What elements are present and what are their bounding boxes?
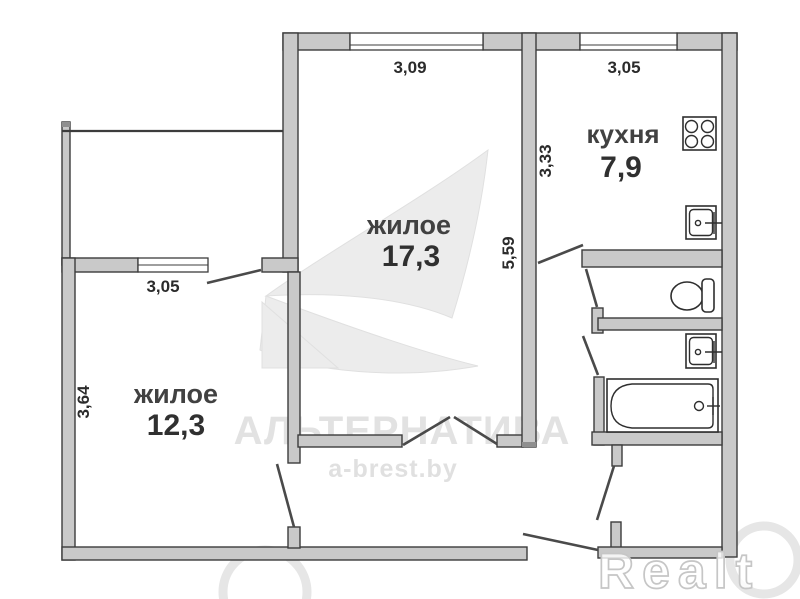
kitchen-door xyxy=(538,245,583,263)
realt-logo-watermark: Realt xyxy=(598,543,760,599)
living-large-right-wall xyxy=(522,33,536,447)
bottom-wall-left xyxy=(62,547,527,560)
wc-door xyxy=(586,269,597,307)
hall-inner-door xyxy=(597,466,614,520)
living-large-name: жилое xyxy=(366,210,451,240)
kitchen-name: кухня xyxy=(586,119,659,149)
floor-plan: АЛЬТЕРНАТИВА a-brest.by xyxy=(0,0,800,599)
wc-bath-divider-wall xyxy=(598,318,722,330)
living-small-door-stub xyxy=(288,527,300,548)
agency-site-watermark: a-brest.by xyxy=(328,455,457,483)
living-large-door-stub xyxy=(497,435,523,447)
right-outer-wall xyxy=(722,33,737,557)
kitchen-area: 7,9 xyxy=(600,151,642,184)
living-small-top-wall-b xyxy=(262,258,298,272)
bathroom-door xyxy=(583,336,598,375)
dim-living-large-width: 3,09 xyxy=(393,58,426,77)
kitchen-bottom-wall xyxy=(582,250,722,267)
kitchen-window xyxy=(580,33,677,50)
floor-plan-page: АЛЬТЕРНАТИВА a-brest.by xyxy=(0,0,800,599)
wall-end-cap xyxy=(522,442,536,447)
living-large-window xyxy=(350,33,483,50)
bathroom-bottom-wall xyxy=(592,432,722,445)
living-large-area: 17,3 xyxy=(382,240,440,273)
living-small-name: жилое xyxy=(133,379,218,409)
dim-balcony-window: 3,05 xyxy=(146,277,179,296)
living-large-bottom-wall xyxy=(298,435,402,447)
bathtub-icon xyxy=(607,379,720,432)
dim-kitchen-width: 3,05 xyxy=(607,58,640,77)
balcony-wall-cap xyxy=(62,122,70,127)
living-small-area: 12,3 xyxy=(147,409,205,442)
dim-living-small-depth: 3,64 xyxy=(74,385,93,419)
bathroom-sink-icon xyxy=(686,334,722,368)
balcony-door xyxy=(207,270,261,283)
toilet-icon xyxy=(671,279,714,312)
balcony-left-wall xyxy=(62,122,70,265)
hall-door-stub-top xyxy=(612,445,622,466)
living-large-left-wall xyxy=(283,33,298,272)
kitchen-sink-icon xyxy=(686,206,722,239)
living-small-door xyxy=(277,464,294,527)
dim-kitchen-depth: 3,33 xyxy=(536,144,555,177)
stove-icon xyxy=(683,117,716,150)
dim-living-large-depth: 5,59 xyxy=(499,236,518,269)
entry-door xyxy=(523,534,598,550)
